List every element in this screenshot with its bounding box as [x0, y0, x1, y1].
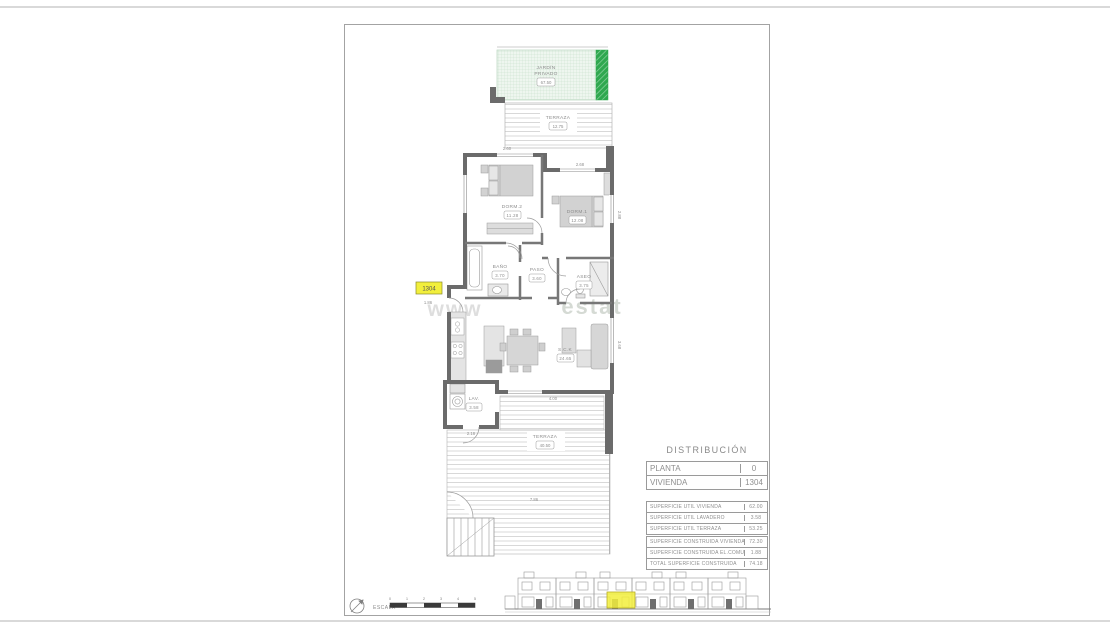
table-row: SUPERFICIE ÚTIL VIVIENDA 62.00	[647, 502, 767, 513]
built-row-value: 72.30	[744, 539, 767, 545]
sck-label: S.C.K	[558, 347, 573, 353]
page-top-edge	[0, 6, 1110, 8]
built-row-value: 1.88	[744, 550, 767, 556]
planta-vivienda-table: PLANTA 0 VIVIENDA 1304	[646, 461, 768, 490]
table-row: SUPERFICIE CONSTRUIDA EL.COMUNES 1.88	[647, 548, 767, 559]
table-row: PLANTA 0	[647, 462, 767, 476]
bedroom-2	[481, 165, 533, 234]
util-row-value: 62.00	[744, 504, 767, 510]
building-module	[670, 572, 708, 609]
util-row-value: 53.25	[744, 526, 767, 532]
private-garden: JARDÍN PRIVADO 67.50	[490, 47, 608, 103]
table-row: SUPERFICIE ÚTIL TERRAZA 53.25	[647, 524, 767, 534]
table-row: SUPERFICIE CONSTRUIDA VIVIENDA 72.30	[647, 537, 767, 548]
dim-entry: 1.86	[424, 300, 433, 305]
scale-tick-labels: 0 1 2 3 4 5	[389, 596, 477, 601]
dim-lav-bottom: 2.16	[467, 431, 476, 436]
util-row-label: SUPERFICIE ÚTIL LAVADERO	[647, 515, 744, 521]
dorm1-area: 12.08	[571, 218, 584, 223]
lav-label: LAV.	[469, 396, 480, 402]
dim-terrace-width: 7.86	[530, 497, 539, 502]
dining-living	[500, 324, 608, 372]
distribution-title: DISTRIBUCIÓN	[646, 445, 768, 455]
footer-strip: ESCALA 0 1 2 3 4 5	[345, 568, 775, 620]
building-module	[708, 572, 746, 609]
bottom-terrace-label: TERRAZA	[533, 434, 558, 440]
highlighted-unit	[607, 592, 635, 608]
vivienda-value: 1304	[740, 478, 767, 487]
aseo-label: ASEO	[577, 274, 592, 280]
garden-label-line2: PRIVADO	[534, 71, 557, 77]
scale-tick: 2	[423, 596, 426, 601]
scale-tick: 0	[389, 596, 392, 601]
dim-dorm2-top: 2.60	[503, 146, 512, 151]
lav-area: 3.58	[469, 405, 479, 410]
dim-living-bottom: 4.00	[549, 396, 558, 401]
bano-label: BAÑO	[493, 263, 508, 270]
util-row-label: SUPERFICIE ÚTIL TERRAZA	[647, 526, 744, 532]
dim-dorm1-top: 2.68	[576, 162, 585, 167]
dorm2-label: DORM.2	[502, 204, 522, 210]
table-row: SUPERFICIE ÚTIL LAVADERO 3.58	[647, 513, 767, 524]
page-bottom-edge	[0, 620, 1110, 622]
top-terrace-area: 12.75	[553, 124, 564, 129]
top-terrace-label: TERRAZA	[546, 115, 571, 121]
util-row-value: 3.58	[744, 515, 767, 521]
scale-bar: ESCALA 0 1 2 3 4 5	[373, 596, 477, 611]
bano-area: 3.70	[495, 273, 505, 278]
kitchen	[449, 312, 504, 382]
scale-tick: 3	[440, 596, 443, 601]
planta-label: PLANTA	[647, 464, 740, 473]
built-row-label: SUPERFICIE CONSTRUIDA VIVIENDA	[647, 539, 744, 545]
built-surface-table: SUPERFICIE CONSTRUIDA VIVIENDA 72.30 SUP…	[646, 536, 768, 570]
garden-hedge	[596, 50, 608, 100]
bottom-terrace-area: 40.50	[540, 443, 551, 448]
top-terrace: TERRAZA 12.75	[505, 103, 614, 170]
vivienda-label: VIVIENDA	[647, 478, 740, 487]
sck-area: 24.65	[559, 356, 572, 361]
scale-tick: 1	[406, 596, 409, 601]
paso-label: PASO	[530, 267, 544, 273]
building-module	[518, 572, 556, 609]
building-module	[556, 572, 594, 609]
aseo-area: 3.75	[579, 283, 589, 288]
north-arrow-icon	[350, 599, 364, 613]
laundry	[450, 384, 465, 409]
unit-number-badge: 1304	[416, 282, 442, 294]
scale-tick: 5	[474, 596, 477, 601]
floor-plan-drawing: JARDÍN PRIVADO 67.50 TERRAZA 12.75 TERRA…	[340, 40, 640, 570]
built-row-label: SUPERFICIE CONSTRUIDA EL.COMUNES	[647, 550, 744, 556]
building-module	[632, 572, 670, 609]
floor-plan-sheet: JARDÍN PRIVADO 67.50 TERRAZA 12.75 TERRA…	[0, 0, 1110, 626]
useful-surface-table: SUPERFICIE ÚTIL VIVIENDA 62.00 SUPERFICI…	[646, 501, 768, 535]
garden-area-value: 67.50	[541, 80, 552, 85]
toilet-room	[562, 262, 609, 298]
planta-value: 0	[740, 464, 767, 473]
scale-tick: 4	[457, 596, 460, 601]
dim-dorm1-right: 2.88	[617, 211, 622, 220]
garden-label-line1: JARDÍN	[536, 64, 555, 71]
dorm2-area: 11.28	[507, 213, 519, 218]
dorm1-label: DORM.1	[567, 209, 587, 215]
dim-living-right: 3.68	[617, 341, 622, 350]
site-key-plan	[505, 572, 771, 612]
built-row-value: 74.18	[744, 561, 767, 567]
paso-area: 3.60	[532, 276, 542, 281]
util-row-label: SUPERFICIE ÚTIL VIVIENDA	[647, 504, 744, 510]
built-row-label: TOTAL SUPERFICIE CONSTRUIDA	[647, 561, 744, 567]
table-row: VIVIENDA 1304	[647, 476, 767, 489]
unit-badge-text: 1304	[422, 287, 436, 293]
